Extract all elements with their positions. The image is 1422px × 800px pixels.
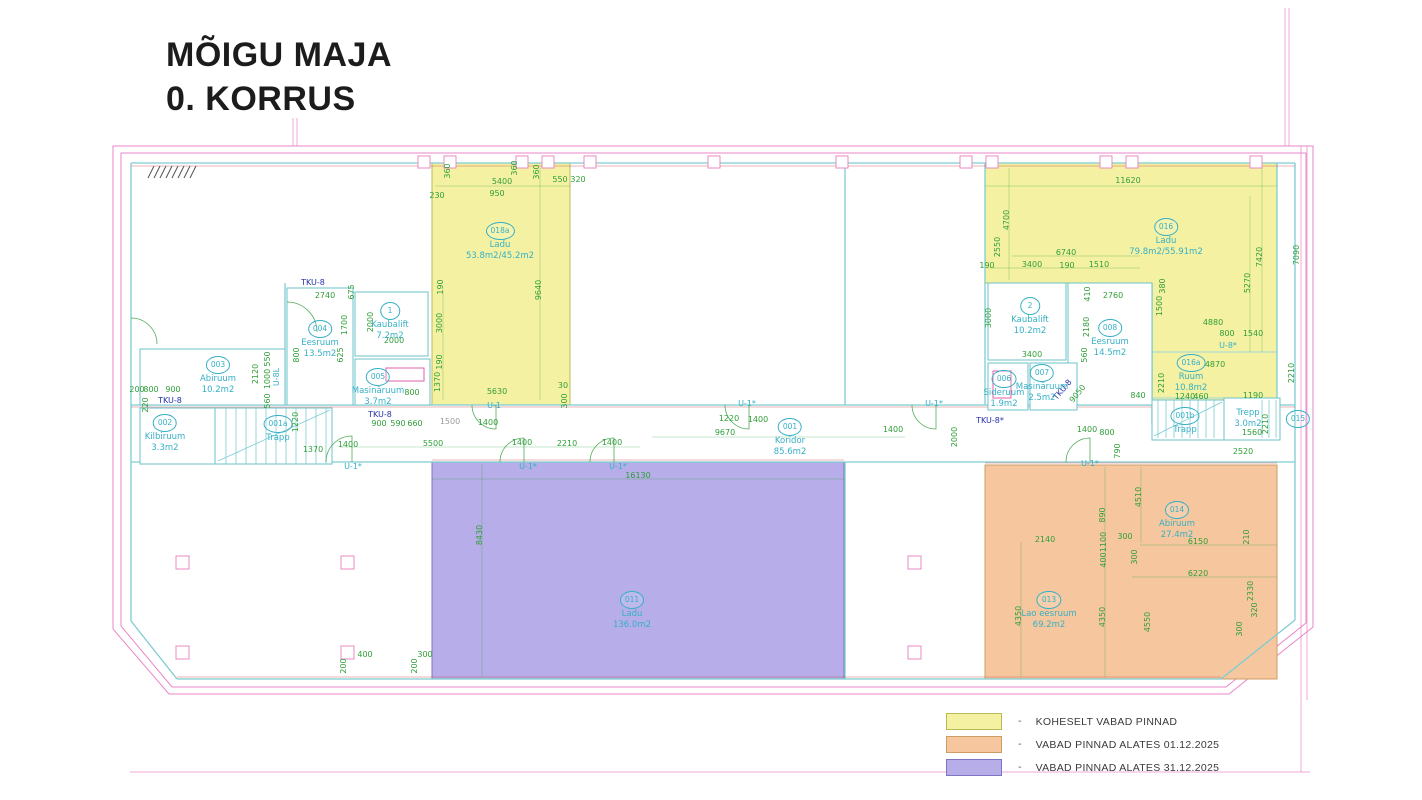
- dimension-label: 9670: [715, 429, 735, 437]
- legend-swatch-orange: [946, 736, 1002, 753]
- room-label-011: 011Ladu136.0m2: [613, 591, 651, 631]
- dimension-label: 1220: [292, 412, 300, 432]
- dimension-label: 6740: [1056, 249, 1076, 257]
- room-number-badge: 003: [206, 356, 230, 374]
- dimension-label: 300: [1117, 533, 1132, 541]
- dimension-label: 320: [570, 176, 585, 184]
- dimension-label: 890: [1099, 507, 1107, 522]
- dimension-label: 320: [1251, 602, 1259, 617]
- dimension-label: 400: [1100, 552, 1108, 567]
- room-number-badge: 013: [1037, 591, 1061, 609]
- dimension-label: 800: [1219, 330, 1234, 338]
- room-area: 10.2m2: [200, 385, 236, 396]
- dimension-label: 360: [533, 164, 541, 179]
- dimension-label: 300: [417, 651, 432, 659]
- dimension-label: 800: [1099, 429, 1114, 437]
- dimension-label: 1370: [303, 446, 323, 454]
- available-2025-12-31-region-011: [432, 462, 844, 679]
- legend-row-available-2025-12-31: - VABAD PINNAD ALATES 31.12.2025: [946, 756, 1219, 779]
- room-name: Ruum: [1175, 372, 1208, 383]
- dimension-label: 4880: [1203, 319, 1223, 327]
- dimension-label: 1540: [1243, 330, 1263, 338]
- dimension-label: TKU-8: [368, 411, 392, 419]
- dimension-label: 550: [552, 176, 567, 184]
- room-name: Trapp: [264, 433, 293, 444]
- room-name: Masinäruum: [1016, 382, 1068, 393]
- dimension-label: 220: [142, 397, 150, 412]
- room-area: 10.8m2: [1175, 383, 1208, 394]
- legend-label: KOHESELT VABAD PINNAD: [1036, 716, 1178, 728]
- dimension-label: 2180: [1083, 317, 1091, 337]
- room-label-008: 008Eesruum14.5m2: [1091, 319, 1129, 359]
- room-area: 3.3m2: [145, 443, 186, 454]
- dimension-label: 11620: [1115, 177, 1140, 185]
- room-name: Ladu: [613, 609, 651, 620]
- dimension-label: U-1*: [519, 463, 537, 471]
- dimension-label: 460: [1193, 393, 1208, 401]
- dimension-label: 2210: [557, 440, 577, 448]
- room-name: Eesruum: [301, 338, 339, 349]
- room-area: 10.2m2: [1011, 326, 1049, 337]
- title-line-2: 0. KORRUS: [166, 78, 392, 122]
- dimension-label: U-1*: [1081, 460, 1099, 468]
- dimension-label: TKU-8: [158, 397, 182, 405]
- dimension-label: 3000: [985, 308, 993, 328]
- dimension-label: 1400: [748, 416, 768, 424]
- room-number-badge: 001: [778, 418, 802, 436]
- page-title: MÕIGU MAJA 0. KORRUS: [166, 34, 392, 121]
- room-number-badge: 002: [153, 414, 177, 432]
- room-label-016: 016Ladu79.8m2/55.91m2: [1129, 218, 1203, 258]
- room-label-001a: 001aTrapp: [264, 415, 293, 444]
- room-number-badge: 005: [366, 368, 390, 386]
- dimension-label: U-1: [487, 402, 501, 410]
- dimension-label: 410: [1084, 286, 1092, 301]
- room-area: 136.0m2: [613, 620, 651, 631]
- dimension-label: 2330: [1247, 581, 1255, 601]
- room-label-014: 014Abiruum27.4m2: [1159, 501, 1195, 541]
- room-name: Abiruum: [200, 374, 236, 385]
- room-number-badge: 006: [992, 370, 1016, 388]
- dimension-label: 30: [558, 382, 568, 390]
- wall-hatch: [148, 166, 196, 178]
- dimension-label: 360: [444, 163, 452, 178]
- room-area: 7.2m2: [371, 331, 409, 342]
- dimension-label: 675: [348, 284, 356, 299]
- dimension-label: TKU-8*: [976, 417, 1004, 425]
- room-label-015: 015: [1286, 410, 1310, 428]
- room-area: 2.5m2: [1016, 393, 1068, 404]
- dimension-label: 3000: [436, 313, 444, 333]
- dimension-label: 560: [264, 393, 272, 408]
- dimension-label: 210: [1243, 529, 1251, 544]
- dimension-label: 1700: [341, 315, 349, 335]
- room-label-001: 001Koridor85.6m2: [774, 418, 807, 458]
- dimension-label: 2210: [1288, 363, 1296, 383]
- room-name: Kaubalift: [371, 320, 409, 331]
- room-area: 85.6m2: [774, 447, 807, 458]
- dimension-label: 2550: [994, 237, 1002, 257]
- dimension-label: 950: [489, 190, 504, 198]
- room-area: 14.5m2: [1091, 348, 1129, 359]
- room-label-002: 002Kilbiruum3.3m2: [145, 414, 186, 454]
- room-number-badge: 001a: [264, 415, 293, 433]
- available-now-region-018a: [432, 163, 570, 405]
- dimension-label: 1240: [1175, 393, 1195, 401]
- room-label-003: 003Abiruum10.2m2: [200, 356, 236, 396]
- dimension-label: 2000: [951, 427, 959, 447]
- room-label-007: 007Masinäruum2.5m2: [1016, 364, 1068, 404]
- room-name: Lao eesruum: [1021, 609, 1076, 620]
- room-area: 13.5m2: [301, 349, 339, 360]
- room-number-badge: 004: [308, 320, 332, 338]
- dimension-label: 190: [1059, 262, 1074, 270]
- dimension-label: 200: [129, 386, 144, 394]
- dimension-label: 1510: [1089, 261, 1109, 269]
- dimension-label: 2210: [1262, 414, 1270, 434]
- dimension-label: 1400: [512, 439, 532, 447]
- room-number-badge: 018a: [486, 222, 515, 240]
- legend-dash: -: [1018, 762, 1022, 773]
- dimension-label: 560: [1081, 347, 1089, 362]
- room-number-badge: 011: [620, 591, 644, 609]
- legend-label: VABAD PINNAD ALATES 31.12.2025: [1036, 762, 1220, 774]
- dimension-label: 4550: [1144, 612, 1152, 632]
- dimension-label: 5400: [492, 178, 512, 186]
- room-label-001b: 001bTrapp: [1170, 407, 1199, 436]
- room-area: 3.0m2: [1234, 419, 1261, 430]
- room-name: Kaubalift: [1011, 315, 1049, 326]
- dimension-label: 2740: [315, 292, 335, 300]
- legend-dash: -: [1018, 716, 1022, 727]
- room-label-004: 004Eesruum13.5m2: [301, 320, 339, 360]
- dimension-label: 300: [561, 393, 569, 408]
- room-name: Masinäruum: [352, 386, 404, 397]
- room-label-1: 1Kaubalift7.2m2: [371, 302, 409, 342]
- dimension-label: 590: [390, 420, 405, 428]
- dimension-label: 1100: [1100, 532, 1108, 552]
- room-label-013: 013Lao eesruum69.2m2: [1021, 591, 1076, 631]
- floor-plan-page: MÕIGU MAJA 0. KORRUS 5400950550320230360…: [0, 0, 1422, 800]
- dimension-label: 2520: [1233, 448, 1253, 456]
- dimension-label: 230: [429, 192, 444, 200]
- room-number-badge: 014: [1165, 501, 1189, 519]
- legend-row-available-2025-12-01: - VABAD PINNAD ALATES 01.12.2025: [946, 733, 1219, 756]
- dimension-label: 1370: [434, 372, 442, 392]
- dimension-label: 300: [1131, 549, 1139, 564]
- dimension-label: 1400: [338, 441, 358, 449]
- room-area: 69.2m2: [1021, 620, 1076, 631]
- dimension-label: 1220: [719, 415, 739, 423]
- room-number-badge: 008: [1098, 319, 1122, 337]
- room-number-badge: 016: [1154, 218, 1178, 236]
- room-name: Koridor: [774, 436, 807, 447]
- dimension-label: 900: [371, 420, 386, 428]
- dimension-label: 1400: [1077, 426, 1097, 434]
- room-area: 79.8m2/55.91m2: [1129, 247, 1203, 258]
- dimension-label: 3400: [1022, 261, 1042, 269]
- room-number-badge: 007: [1030, 364, 1054, 382]
- dimension-label: 1500: [440, 418, 460, 426]
- room-name: Ladu: [466, 240, 534, 251]
- dimension-label: 190: [436, 354, 444, 369]
- dimension-label: 9640: [535, 280, 543, 300]
- dimension-label: 5500: [423, 440, 443, 448]
- dimension-label: 790: [1114, 443, 1122, 458]
- dimension-label: 190: [437, 279, 445, 294]
- legend-label: VABAD PINNAD ALATES 01.12.2025: [1036, 739, 1220, 751]
- room-number-badge: 001b: [1170, 407, 1199, 425]
- room-area: 3.7m2: [352, 397, 404, 408]
- available-2025-12-01-region-013-014: [985, 465, 1277, 679]
- dimension-label: 900: [165, 386, 180, 394]
- legend-swatch-purple: [946, 759, 1002, 776]
- room-label-2: 2Kaubalift10.2m2: [1011, 297, 1049, 337]
- room-label-005: 005Masinäruum3.7m2: [352, 368, 404, 408]
- dimension-label: TKU-8: [301, 279, 325, 287]
- dimension-label: 7090: [1293, 245, 1301, 265]
- room-name: Eesruum: [1091, 337, 1129, 348]
- room-name: Abiruum: [1159, 519, 1195, 530]
- room-label-trepp: Trepp3.0m2: [1234, 408, 1261, 430]
- room-number-badge: 015: [1286, 410, 1310, 428]
- dimension-label: 1190: [1243, 392, 1263, 400]
- legend-swatch-yellow: [946, 713, 1002, 730]
- dimension-label: 4350: [1099, 607, 1107, 627]
- dimension-label: 550: [264, 351, 272, 366]
- dimension-label: 5270: [1244, 273, 1252, 293]
- dimension-label: 800: [293, 347, 301, 362]
- dimension-label: 1500: [1156, 296, 1164, 316]
- dimension-label: 360: [511, 160, 519, 175]
- room-number-badge: 1: [380, 302, 400, 320]
- dimension-label: U-8L: [273, 368, 281, 386]
- dimension-label: 3400: [1022, 351, 1042, 359]
- room-name: Kilbiruum: [145, 432, 186, 443]
- dimension-label: 2760: [1103, 292, 1123, 300]
- dimension-label: 4510: [1135, 487, 1143, 507]
- room-name: Trapp: [1170, 425, 1199, 436]
- dimension-label: 380: [1159, 278, 1167, 293]
- dimension-label: 800: [143, 386, 158, 394]
- dimension-label: 800: [404, 389, 419, 397]
- dimension-label: 8430: [476, 525, 484, 545]
- dimension-label: U-1*: [609, 463, 627, 471]
- dimension-label: 2140: [1035, 536, 1055, 544]
- dimension-label: 2120: [252, 364, 260, 384]
- room-number-badge: 2: [1020, 297, 1040, 315]
- room-name: Trepp: [1234, 408, 1261, 419]
- dimension-label: 660: [407, 420, 422, 428]
- room-area: 27.4m2: [1159, 530, 1195, 541]
- room-label-016a: 016aRuum10.8m2: [1175, 354, 1208, 394]
- dimension-label: 4700: [1003, 210, 1011, 230]
- dimension-label: U-1*: [344, 463, 362, 471]
- legend: - KOHESELT VABAD PINNAD - VABAD PINNAD A…: [946, 710, 1219, 779]
- dimension-label: 1400: [602, 439, 622, 447]
- room-area: 53.8m2/45.2m2: [466, 251, 534, 262]
- dimension-label: 1400: [883, 426, 903, 434]
- dimension-label: U-1*: [738, 400, 756, 408]
- dimension-label: 1400: [478, 419, 498, 427]
- dimension-label: 6220: [1188, 570, 1208, 578]
- dimension-label: 300: [1236, 621, 1244, 636]
- dimension-label: 200: [411, 658, 419, 673]
- legend-dash: -: [1018, 739, 1022, 750]
- legend-row-available-now: - KOHESELT VABAD PINNAD: [946, 710, 1219, 733]
- room-number-badge: 016a: [1177, 354, 1206, 372]
- dimension-label: 2210: [1158, 373, 1166, 393]
- dimension-label: 1000: [264, 369, 272, 389]
- room-label-018a: 018aLadu53.8m2/45.2m2: [466, 222, 534, 262]
- title-line-1: MÕIGU MAJA: [166, 34, 392, 78]
- dimension-label: 840: [1130, 392, 1145, 400]
- dimension-label: U-1*: [925, 400, 943, 408]
- dimension-label: 16130: [625, 472, 650, 480]
- dimension-label: 190: [979, 262, 994, 270]
- dimension-label: 7420: [1256, 247, 1264, 267]
- room-name: Ladu: [1129, 236, 1203, 247]
- dimension-label: 400: [357, 651, 372, 659]
- dimension-label: 4870: [1205, 361, 1225, 369]
- dimension-label: 1560: [1242, 429, 1262, 437]
- dimension-label: 5630: [487, 388, 507, 396]
- dimension-label: U-8*: [1219, 342, 1237, 350]
- dimension-label: 200: [340, 658, 348, 673]
